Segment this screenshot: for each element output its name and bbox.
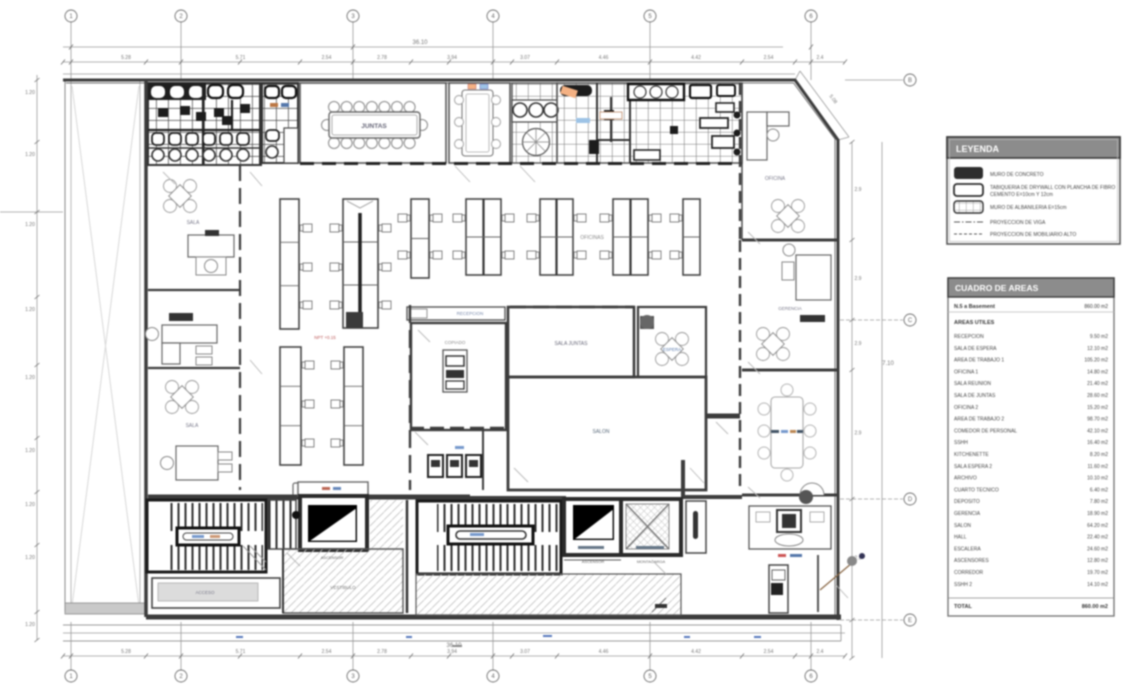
svg-text:3.07: 3.07 <box>520 649 530 655</box>
svg-text:OFICINA 2: OFICINA 2 <box>954 405 978 411</box>
svg-text:TOTAL: TOTAL <box>954 604 972 610</box>
svg-text:PROYECCION DE VIGA: PROYECCION DE VIGA <box>990 220 1046 226</box>
svg-text:16.40 m2: 16.40 m2 <box>1087 440 1108 446</box>
svg-text:B: B <box>908 78 912 84</box>
svg-text:D: D <box>908 497 913 503</box>
svg-text:SALA REUNION: SALA REUNION <box>954 381 991 387</box>
svg-text:GERENCIA: GERENCIA <box>954 511 981 517</box>
svg-text:105.20 m2: 105.20 m2 <box>1084 358 1108 364</box>
svg-text:2.78: 2.78 <box>377 55 387 61</box>
svg-text:4.42: 4.42 <box>691 649 701 655</box>
svg-text:21.40 m2: 21.40 m2 <box>1087 381 1108 387</box>
svg-text:10.10 m2: 10.10 m2 <box>1087 476 1108 482</box>
svg-text:1.20: 1.20 <box>25 307 35 313</box>
svg-text:RECEPCION: RECEPCION <box>954 334 984 340</box>
svg-text:RECEPCION: RECEPCION <box>457 311 484 316</box>
svg-text:4.46: 4.46 <box>599 55 609 61</box>
svg-text:11.60 m2: 11.60 m2 <box>1088 464 1109 470</box>
svg-text:2.4: 2.4 <box>817 55 824 61</box>
svg-text:AREA DE TRABAJO 1: AREA DE TRABAJO 1 <box>954 358 1004 364</box>
svg-text:2.4: 2.4 <box>817 649 824 655</box>
svg-text:14.10 m2: 14.10 m2 <box>1087 582 1108 588</box>
svg-text:18.90 m2: 18.90 m2 <box>1087 511 1108 517</box>
svg-text:MURO DE CONCRETO: MURO DE CONCRETO <box>990 172 1044 178</box>
svg-text:SSHH: SSHH <box>954 440 968 446</box>
svg-text:SALON: SALON <box>954 523 971 529</box>
svg-text:SALA: SALA <box>187 220 200 226</box>
svg-text:1.20: 1.20 <box>25 152 35 158</box>
svg-text:2.54: 2.54 <box>322 649 332 655</box>
svg-text:JUNTAS: JUNTAS <box>361 123 387 130</box>
svg-text:2.54: 2.54 <box>764 55 774 61</box>
svg-text:SALA JUNTAS: SALA JUNTAS <box>555 341 589 347</box>
svg-text:CUARTO TECNICO: CUARTO TECNICO <box>954 487 999 493</box>
svg-text:2.9: 2.9 <box>855 431 862 437</box>
svg-text:GERENCIA: GERENCIA <box>778 306 802 311</box>
svg-text:COMEDOR DE PERSONAL: COMEDOR DE PERSONAL <box>954 428 1017 434</box>
svg-text:5.71: 5.71 <box>236 649 246 655</box>
svg-text:ACCESO: ACCESO <box>195 590 215 595</box>
svg-text:1.20: 1.20 <box>25 448 35 454</box>
svg-text:7.80 m2: 7.80 m2 <box>1090 499 1108 505</box>
svg-text:CEMENTO E=10cm Y 12cm: CEMENTO E=10cm Y 12cm <box>990 192 1053 198</box>
svg-text:1.20: 1.20 <box>25 375 35 381</box>
svg-text:SALA: SALA <box>186 423 199 429</box>
svg-text:MONTACARGA: MONTACARGA <box>637 559 666 564</box>
svg-text:15.20 m2: 15.20 m2 <box>1087 405 1108 411</box>
svg-text:19.70 m2: 19.70 m2 <box>1087 570 1108 576</box>
svg-text:LEYENDA: LEYENDA <box>956 144 1000 154</box>
svg-text:9.50 m2: 9.50 m2 <box>1090 334 1108 340</box>
svg-text:COPIADO: COPIADO <box>445 340 466 345</box>
svg-text:36.10: 36.10 <box>412 40 428 46</box>
svg-text:3.94: 3.94 <box>447 55 457 61</box>
svg-text:HALL: HALL <box>954 535 967 541</box>
svg-text:4.46: 4.46 <box>599 649 609 655</box>
svg-text:ASCENSOR: ASCENSOR <box>582 559 605 564</box>
svg-text:1.20: 1.20 <box>25 222 35 228</box>
svg-text:E: E <box>908 618 912 624</box>
svg-text:7.10: 7.10 <box>882 361 894 367</box>
svg-text:SALA DE ESPERA: SALA DE ESPERA <box>954 346 997 352</box>
svg-text:ASCENSORES: ASCENSORES <box>954 558 989 564</box>
svg-text:1.20: 1.20 <box>25 502 35 508</box>
svg-text:6.40 m2: 6.40 m2 <box>1090 487 1108 493</box>
svg-text:ASCENSOR: ASCENSOR <box>321 555 344 560</box>
svg-text:14.80 m2: 14.80 m2 <box>1087 369 1108 375</box>
svg-text:CUADRO DE AREAS: CUADRO DE AREAS <box>955 283 1039 293</box>
svg-text:2.9: 2.9 <box>855 276 862 282</box>
svg-text:AREA DE TRABAJO 2: AREA DE TRABAJO 2 <box>954 417 1004 423</box>
svg-text:SSHH 2: SSHH 2 <box>954 582 972 588</box>
svg-text:22.40 m2: 22.40 m2 <box>1087 535 1108 541</box>
svg-text:DEPOSITO: DEPOSITO <box>954 499 980 505</box>
svg-text:1.20: 1.20 <box>25 90 35 96</box>
svg-text:TABIQUERIA DE DRYWALL CON PLAN: TABIQUERIA DE DRYWALL CON PLANCHA DE FIB… <box>990 185 1115 191</box>
svg-text:PROYECCION DE MOBILIARIO ALTO: PROYECCION DE MOBILIARIO ALTO <box>990 232 1076 238</box>
svg-text:OFICINA 1: OFICINA 1 <box>954 369 978 375</box>
svg-text:OFICINAS: OFICINAS <box>580 235 604 241</box>
svg-text:2.9: 2.9 <box>855 341 862 347</box>
svg-text:N.5 a Basement: N.5 a Basement <box>954 304 995 310</box>
svg-text:2.9: 2.9 <box>855 187 862 193</box>
svg-text:OFICINA: OFICINA <box>765 176 786 182</box>
svg-text:5.28: 5.28 <box>121 55 131 61</box>
svg-text:12.10 m2: 12.10 m2 <box>1087 346 1108 352</box>
svg-text:1.20: 1.20 <box>25 555 35 561</box>
svg-text:ARCHIVO: ARCHIVO <box>954 476 977 482</box>
svg-text:8.20 m2: 8.20 m2 <box>1090 452 1108 458</box>
svg-text:4.42: 4.42 <box>691 55 701 61</box>
svg-text:24.60 m2: 24.60 m2 <box>1087 546 1108 552</box>
svg-text:SALA ESPERA 2: SALA ESPERA 2 <box>954 464 992 470</box>
svg-text:98.70 m2: 98.70 m2 <box>1087 417 1108 423</box>
svg-text:64.20 m2: 64.20 m2 <box>1087 523 1108 529</box>
svg-text:NPT +0.15: NPT +0.15 <box>314 335 336 340</box>
svg-text:CORREDOR: CORREDOR <box>954 570 984 576</box>
svg-text:MURO DE ALBANILERIA E=15cm: MURO DE ALBANILERIA E=15cm <box>990 205 1067 211</box>
svg-text:5.28: 5.28 <box>121 649 131 655</box>
svg-text:3.94: 3.94 <box>447 649 457 655</box>
svg-text:3.07: 3.07 <box>520 55 530 61</box>
svg-text:AREAS UTILES: AREAS UTILES <box>954 320 995 326</box>
svg-text:1.20: 1.20 <box>25 622 35 628</box>
svg-text:C: C <box>908 318 913 324</box>
svg-text:860.00 m2: 860.00 m2 <box>1082 604 1108 610</box>
svg-text:28.60 m2: 28.60 m2 <box>1087 393 1108 399</box>
svg-text:ESPERA: ESPERA <box>663 347 681 352</box>
svg-text:42.10 m2: 42.10 m2 <box>1087 428 1108 434</box>
svg-text:860.00 m2: 860.00 m2 <box>1084 304 1108 310</box>
svg-text:12.80 m2: 12.80 m2 <box>1087 558 1108 564</box>
svg-text:SALA DE JUNTAS: SALA DE JUNTAS <box>954 393 996 399</box>
svg-text:2.78: 2.78 <box>377 649 387 655</box>
svg-text:5.71: 5.71 <box>236 55 246 61</box>
svg-text:KITCHENETTE: KITCHENETTE <box>954 452 989 458</box>
svg-text:SALON: SALON <box>593 429 610 435</box>
svg-text:2.54: 2.54 <box>322 55 332 61</box>
svg-text:ESCALERA: ESCALERA <box>954 546 981 552</box>
svg-text:2.54: 2.54 <box>764 649 774 655</box>
svg-text:VESTIBULO: VESTIBULO <box>330 585 356 590</box>
